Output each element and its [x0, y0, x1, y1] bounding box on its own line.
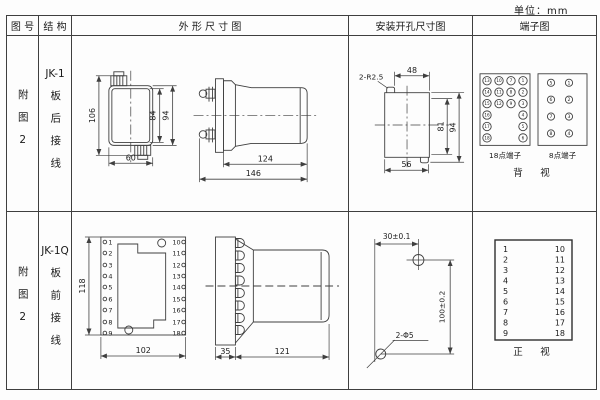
dim-body-length: 124	[258, 154, 273, 163]
terminal-number: 14	[484, 90, 490, 95]
terminal-number: 3	[568, 114, 571, 120]
terminal-number: 6	[550, 97, 553, 103]
terminal-18pt-label: 18点端子	[489, 150, 522, 160]
dim-height: 118	[78, 278, 87, 293]
row2-wiring: 板前接线	[50, 267, 61, 357]
terminal-front-box: 1 2 3 4 5 6 7 8 9 10 11 12 13 14 15 16 1	[495, 240, 572, 340]
front-terminal-number: 8	[108, 318, 112, 326]
row2-model: JK-1Q	[41, 245, 69, 257]
terminal-number: 1	[503, 245, 508, 254]
dim-outer-height: 94	[162, 110, 171, 120]
dim-front-height: 106	[88, 108, 97, 123]
terminal-8pt-box: 5 1 6 2 7 3 8 4 8点端子	[538, 74, 587, 160]
front-terminal-number: 6	[108, 295, 112, 303]
front-terminal-number: 10	[172, 238, 180, 246]
terminal-number: 15	[484, 101, 490, 106]
terminal-number: 1	[522, 78, 525, 83]
front-terminal-number: 5	[108, 283, 112, 291]
terminal-number: 2	[522, 90, 525, 95]
front-terminal-number: 14	[172, 283, 180, 291]
row1-mounting-cell: 2-R2.5 48 81 94	[349, 36, 473, 212]
terminal-number: 5	[550, 80, 553, 86]
jk1-terminal-drawing: 13 10 7 1 14 11 8 2 15 12 9 3 16 4 17 5	[473, 36, 596, 211]
terminal-number: 10	[496, 78, 502, 83]
front-terminal-number: 4	[108, 272, 112, 280]
front-terminal-number: 9	[108, 329, 112, 337]
row1-fig-no-cell: 附图2	[7, 36, 39, 212]
dim-hole-spec: 2-Φ5	[396, 331, 414, 340]
row1-terminal-cell: 13 10 7 1 14 11 8 2 15 12 9 3 16 4 17 5	[473, 36, 596, 212]
dim-hole-spacing-x: 30±0.1	[383, 232, 411, 241]
terminal-number: 12	[555, 266, 565, 275]
row1-structure-cell: JK-1 板后接线	[39, 36, 72, 212]
terminal-number: 18	[555, 329, 565, 338]
row2-terminal-cell: 1 2 3 4 5 6 7 8 9 10 11 12 13 14 15 16 1	[473, 212, 596, 389]
terminal-number: 5	[503, 287, 508, 296]
terminal-number: 8	[510, 90, 513, 95]
front-terminal-number: 7	[108, 306, 112, 314]
front-terminal-number: 17	[172, 318, 180, 326]
terminal-number: 15	[555, 298, 565, 307]
terminal-number: 11	[496, 90, 502, 95]
terminal-number: 4	[503, 277, 508, 286]
row1-wiring: 板后接线	[50, 90, 61, 180]
header-fig-no: 图 号	[7, 16, 39, 36]
front-terminal-number: 15	[172, 295, 180, 303]
terminal-number: 3	[522, 101, 525, 106]
terminal-number: 9	[510, 101, 513, 106]
dim-width: 102	[136, 346, 151, 355]
dim-width: 60	[126, 153, 136, 162]
header-structure: 结 构	[39, 16, 72, 36]
terminal-number: 2	[568, 97, 571, 103]
row2-mounting-cell: 30±0.1 100±0.2 2-Φ5	[349, 212, 473, 389]
row1-fig-no: 附图2	[17, 89, 28, 158]
terminal-number: 3	[503, 266, 508, 275]
terminal-number: 13	[555, 277, 565, 286]
header-terminal: 端子图	[473, 16, 596, 36]
header-mounting: 安装开孔尺寸图	[349, 16, 473, 36]
dim-total-length: 146	[246, 169, 261, 178]
terminal-number: 11	[555, 256, 565, 265]
terminal-18pt-box: 13 10 7 1 14 11 8 2 15 12 9 3 16 4 17 5	[480, 74, 530, 160]
front-terminal-number: 12	[172, 261, 180, 269]
header-outline: 外 形 尺 寸 图	[72, 16, 349, 36]
terminal-number: 14	[555, 287, 565, 296]
row1-view-label: 背 视	[513, 167, 553, 179]
terminal-8pt-label: 8点端子	[549, 150, 577, 160]
terminal-number: 2	[503, 256, 508, 265]
jk1q-side-view: 35 121	[206, 237, 340, 360]
jk1-front-view: 106 84 94 60	[88, 71, 177, 166]
terminal-number: 16	[555, 308, 565, 317]
terminal-number: 17	[484, 124, 490, 129]
terminal-number: 10	[555, 245, 565, 254]
terminal-number: 7	[503, 308, 508, 317]
terminal-number: 6	[522, 135, 525, 140]
dim-mount-outer-height: 94	[449, 122, 458, 132]
terminal-number: 4	[522, 113, 525, 118]
jk1-outline-drawing: 106 84 94 60	[72, 36, 348, 211]
row1-model: JK-1	[45, 68, 64, 80]
front-terminal-number: 1	[108, 238, 112, 246]
front-terminal-number: 2	[108, 249, 112, 257]
jk1q-terminal-drawing: 1 2 3 4 5 6 7 8 9 10 11 12 13 14 15 16 1	[473, 212, 596, 389]
row2-fig-no-cell: 附图2	[7, 212, 39, 389]
row2-view-label: 正 视	[513, 346, 554, 358]
jk1q-mounting-holes: 30±0.1 100±0.2 2-Φ5	[367, 232, 454, 368]
front-terminal-number: 3	[108, 261, 112, 269]
jk1q-outline-drawing: 1 2 3 4 5 6 7 8 9 10 11 12 13 14 15 16 1	[72, 212, 348, 389]
front-terminal-number: 16	[172, 306, 180, 314]
dim-top-width: 48	[407, 66, 417, 75]
terminal-number: 13	[484, 78, 490, 83]
terminal-number: 9	[503, 329, 508, 338]
terminal-number: 5	[522, 124, 525, 129]
row2-fig-no: 附图2	[17, 266, 28, 335]
front-terminal-number: 11	[172, 249, 180, 257]
row1-outline-cell: 106 84 94 60	[72, 36, 349, 212]
jk1q-mounting-drawing: 30±0.1 100±0.2 2-Φ5	[349, 212, 472, 389]
jk1-side-view: 124 146	[194, 79, 320, 182]
terminal-number: 7	[510, 78, 513, 83]
dim-body-length: 121	[275, 347, 290, 356]
datasheet-page: 单位：mm 图 号 结 构 外 形 尺 寸 图 安装开孔尺寸图 端子图 附图2 …	[0, 0, 600, 400]
terminal-number: 16	[484, 113, 490, 118]
dim-inner-height: 84	[149, 110, 158, 120]
terminal-number: 18	[484, 135, 490, 140]
front-terminal-number: 13	[172, 272, 180, 280]
terminal-number: 7	[550, 114, 553, 120]
terminal-number: 12	[496, 101, 502, 106]
dim-notch-radius: 2-R2.5	[359, 73, 384, 82]
dimension-table: 图 号 结 构 外 形 尺 寸 图 安装开孔尺寸图 端子图 附图2 JK-1 板…	[6, 15, 597, 390]
dim-plate-depth: 35	[220, 347, 230, 356]
terminal-number: 8	[503, 319, 508, 328]
terminal-number: 1	[568, 80, 571, 86]
dim-hole-spacing-y: 100±0.2	[438, 291, 447, 323]
terminal-number: 8	[550, 131, 553, 137]
jk1q-front-view: 1 2 3 4 5 6 7 8 9 10 11 12 13 14 15 16 1	[78, 237, 186, 359]
jk1-mounting-cutout: 2-R2.5 48 81 94	[359, 66, 464, 173]
terminal-number: 17	[555, 319, 565, 328]
front-terminal-number: 18	[172, 329, 180, 337]
terminal-number: 6	[503, 298, 508, 307]
row2-outline-cell: 1 2 3 4 5 6 7 8 9 10 11 12 13 14 15 16 1	[72, 212, 349, 389]
row2-structure-cell: JK-1Q 板前接线	[39, 212, 72, 389]
terminal-number: 4	[568, 131, 571, 137]
dim-bottom-width: 56	[401, 160, 411, 169]
jk1-mounting-drawing: 2-R2.5 48 81 94	[349, 36, 472, 211]
dim-mount-inner-height: 81	[437, 121, 446, 131]
